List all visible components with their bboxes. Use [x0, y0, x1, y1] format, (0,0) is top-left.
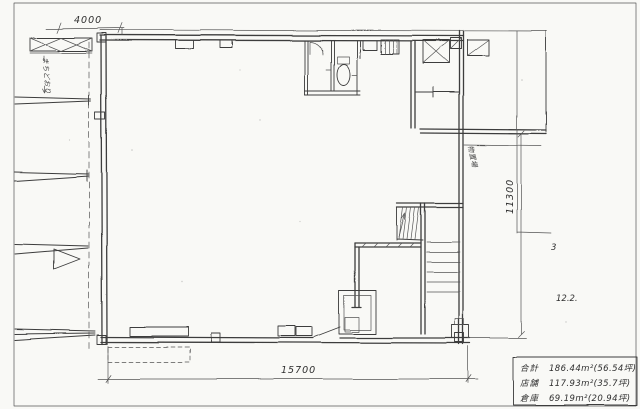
stair-annotation-label: 物置場: [466, 145, 479, 169]
storage-closet: [339, 290, 376, 334]
dim-label-15700: 15700: [281, 365, 316, 376]
area-row-label: 倉庫: [520, 393, 540, 404]
top-wall-fixtures: [176, 40, 399, 54]
staircase: [352, 203, 463, 334]
street-markings: [15, 38, 95, 352]
building-walls: [95, 30, 547, 362]
door-swing: [314, 327, 340, 337]
floorplan-sheet: 4000 15700 11300 まちどおり 物置場 3 12.2. 合計 18…: [0, 0, 640, 409]
stair-treads: [427, 242, 460, 292]
photocopy-noise: [69, 69, 566, 322]
note-small: 3: [551, 243, 556, 253]
dim-label-4000: 4000: [74, 15, 102, 26]
street-name-vertical-label: まちどおり: [41, 57, 52, 95]
bottom-wall-fixtures: [130, 319, 469, 338]
area-row-value: 186.44m²(56.54坪): [549, 363, 636, 374]
area-row-label: 店舗: [520, 378, 540, 389]
wall-tab: [95, 112, 105, 119]
area-row-label: 合計: [520, 363, 540, 374]
image-frame: [14, 3, 636, 406]
area-row-value: 117.93m²(35.7坪): [549, 378, 631, 389]
area-row-value: 69.19m²(20.94坪): [549, 393, 631, 404]
entrance-triangle-marker: [54, 249, 80, 269]
dim-label-11300: 11300: [505, 179, 516, 214]
floorplan-sketch: 4000 15700 11300 まちどおり 物置場 3 12.2. 合計 18…: [0, 0, 640, 409]
top-right-room: [411, 38, 461, 128]
toilet-bowl: [337, 65, 350, 86]
area-table: 合計 186.44m²(56.54坪) 店舗 117.93m²(35.7坪) 倉…: [520, 363, 636, 404]
toilet-area: [305, 41, 360, 95]
crosswalk-hatch-box: [30, 38, 92, 51]
dashed-canopy-outline: [108, 347, 190, 362]
note-number: 12.2.: [556, 294, 578, 304]
door-arc: [310, 42, 323, 55]
toilet-tank: [337, 57, 349, 64]
